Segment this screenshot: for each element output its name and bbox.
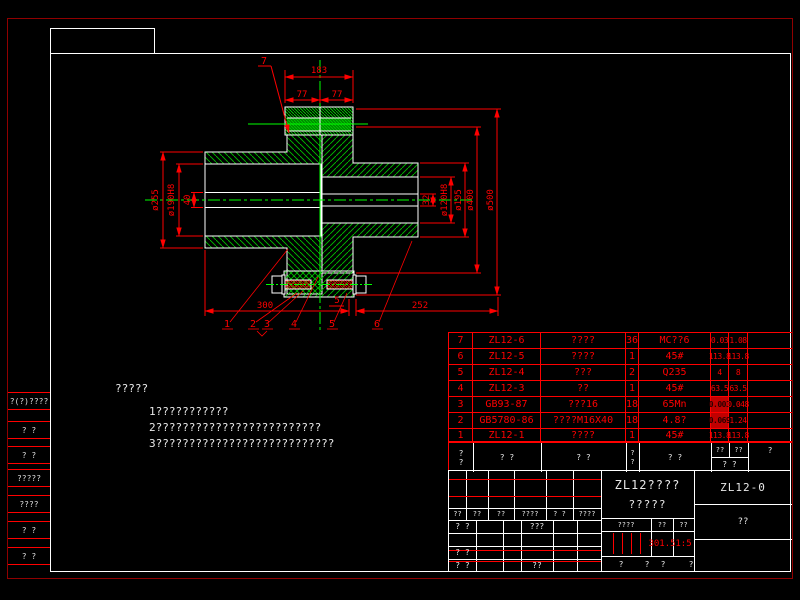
dim-d120: ø120H8 — [440, 184, 450, 217]
balloon-1: 1 — [224, 319, 230, 330]
balloon-5: 5 — [329, 319, 335, 330]
dim-d40: 40 — [183, 195, 193, 206]
dim-d500: ø500 — [486, 189, 496, 211]
balloon-6: 6 — [374, 319, 380, 330]
dim-d195: ø195 — [454, 189, 464, 211]
dim-right-hub: 77 — [332, 90, 343, 100]
dim-left-hub: 77 — [297, 90, 308, 100]
dim-d190: ø190H8 — [167, 184, 177, 217]
dim-len-right: 252 — [412, 301, 428, 311]
cad-canvas[interactable]: 183 77 77 ø255 ø190H8 40 32 ø120H8 ø195 … — [0, 0, 800, 600]
balloon-4: 4 — [291, 319, 297, 330]
dim-d400: ø400 — [466, 189, 476, 211]
dim-d32: 32 — [422, 195, 432, 206]
balloon-2: 2 — [250, 319, 256, 330]
dim-overall-width: 183 — [311, 66, 327, 76]
pin-assembly-section — [266, 271, 372, 297]
dim-gap: 5 — [334, 296, 339, 306]
balloon-3: 3 — [264, 319, 270, 330]
balloon-7: 7 — [261, 56, 267, 67]
dim-d255: ø255 — [151, 189, 161, 211]
dim-len-left: 300 — [257, 301, 273, 311]
